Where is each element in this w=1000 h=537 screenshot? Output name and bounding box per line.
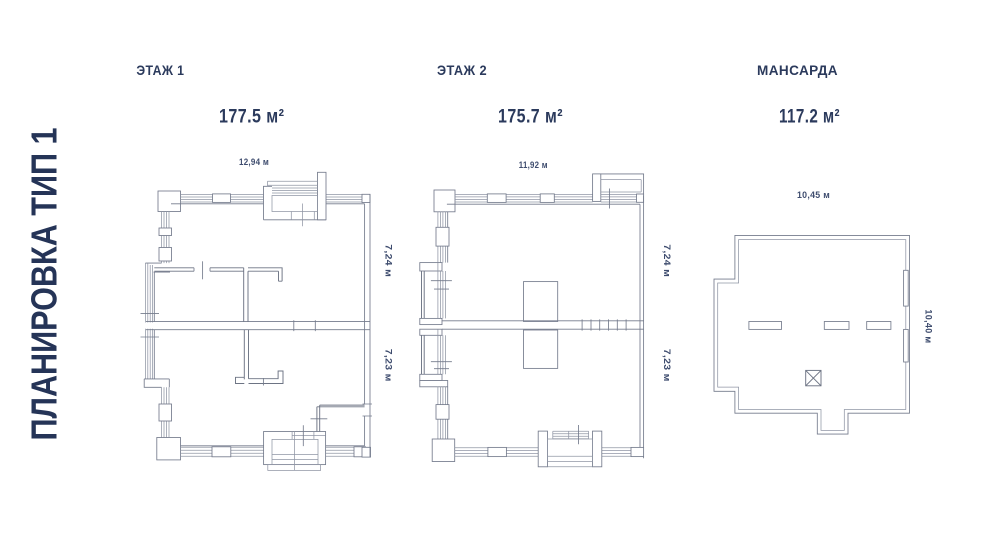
svg-text:12,94 м: 12,94 м — [239, 157, 269, 167]
svg-text:ПЛАНИРОВКА ТИП 1: ПЛАНИРОВКА ТИП 1 — [24, 128, 65, 441]
svg-text:11,92 м: 11,92 м — [519, 160, 548, 170]
svg-text:ЭТАЖ 1: ЭТАЖ 1 — [136, 63, 184, 78]
svg-text:10,40 м: 10,40 м — [924, 309, 934, 343]
svg-text:7,24 м: 7,24 м — [662, 244, 672, 277]
svg-text:7,23 м: 7,23 м — [384, 349, 394, 382]
svg-text:10,45 м: 10,45 м — [797, 190, 830, 200]
svg-text:МАНСАРДА: МАНСАРДА — [757, 63, 838, 78]
svg-text:177.5 м²: 177.5 м² — [219, 106, 284, 127]
svg-text:117.2 м²: 117.2 м² — [779, 106, 840, 127]
svg-text:7,24 м: 7,24 м — [384, 244, 394, 277]
svg-text:175.7 м²: 175.7 м² — [498, 106, 563, 127]
svg-text:7,23 м: 7,23 м — [662, 349, 672, 382]
svg-text:ЭТАЖ 2: ЭТАЖ 2 — [437, 63, 487, 78]
